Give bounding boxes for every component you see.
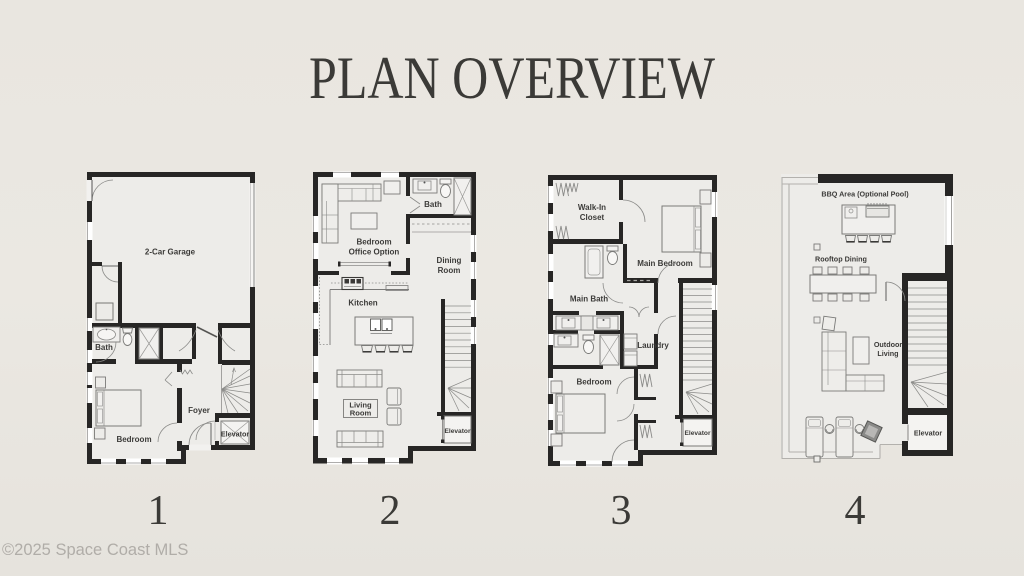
svg-text:Main Bath: Main Bath <box>570 295 608 304</box>
svg-text:Main Bedroom: Main Bedroom <box>637 259 693 268</box>
svg-text:Room: Room <box>438 266 461 275</box>
svg-text:Rooftop Dining: Rooftop Dining <box>815 255 867 264</box>
svg-text:Dining: Dining <box>437 256 462 265</box>
svg-text:4: 4 <box>845 488 866 534</box>
svg-text:Bedroom: Bedroom <box>576 378 611 387</box>
svg-text:Bath: Bath <box>95 343 113 352</box>
svg-text:Walk-In: Walk-In <box>578 203 606 212</box>
svg-text:Room: Room <box>350 409 372 418</box>
svg-text:Elevator: Elevator <box>684 430 710 437</box>
svg-text:Bedroom: Bedroom <box>356 238 391 247</box>
svg-text:Foyer: Foyer <box>188 406 210 415</box>
svg-text:Laundry: Laundry <box>637 341 669 350</box>
svg-text:Kitchen: Kitchen <box>348 299 377 308</box>
svg-text:Office Option: Office Option <box>349 248 400 257</box>
svg-text:2: 2 <box>380 488 401 534</box>
svg-text:Living: Living <box>877 349 898 358</box>
svg-text:2-Car Garage: 2-Car Garage <box>145 248 196 257</box>
svg-text:PLAN OVERVIEW: PLAN OVERVIEW <box>309 45 715 111</box>
svg-text:Bath: Bath <box>424 200 442 209</box>
svg-text:Closet: Closet <box>580 213 605 222</box>
svg-text:Elevator: Elevator <box>914 429 943 438</box>
svg-text:Elevator: Elevator <box>444 428 470 435</box>
svg-text:3: 3 <box>611 488 632 534</box>
svg-text:BBQ Area (Optional Pool): BBQ Area (Optional Pool) <box>821 190 909 199</box>
svg-text:Bedroom: Bedroom <box>116 435 151 444</box>
svg-text:1: 1 <box>148 488 169 534</box>
svg-text:Outdoor: Outdoor <box>874 340 903 349</box>
svg-text:©2025 Space Coast MLS: ©2025 Space Coast MLS <box>2 541 188 559</box>
svg-text:Elevator: Elevator <box>221 430 250 439</box>
